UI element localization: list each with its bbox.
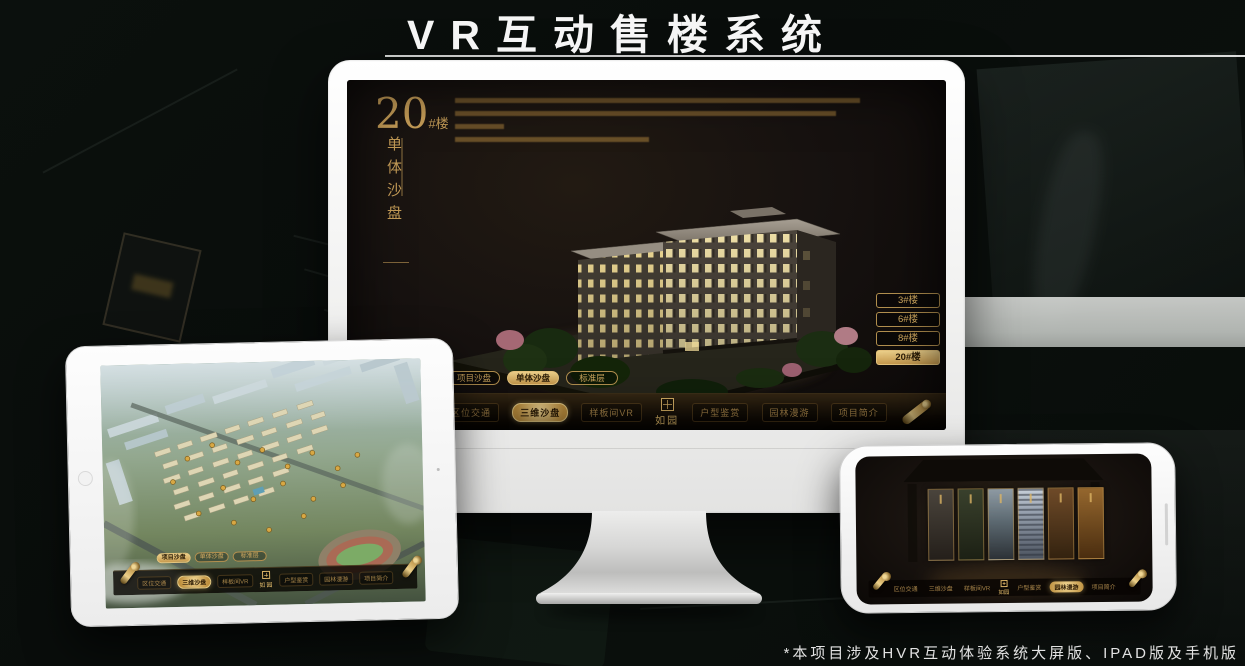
text-line	[455, 111, 836, 116]
tablet-nav-garden-tour[interactable]: 园林漫游	[319, 571, 353, 585]
tablet-device: 项目沙盘 单体沙盘 标准层 区位交通 三维沙盘 样板间VR 如园 户型鉴赏 园林…	[65, 338, 459, 628]
seal-icon	[661, 398, 674, 411]
scene-panel-interior[interactable]	[928, 489, 955, 561]
description-paragraph-blur	[455, 98, 860, 150]
building-selector-group: 3#楼 6#楼 8#楼 20#楼	[876, 293, 940, 365]
building-button-20[interactable]: 20#楼	[876, 350, 940, 365]
text-line	[455, 137, 649, 142]
tablet-nav-3d-sandbox[interactable]: 三维沙盘	[177, 575, 211, 589]
building-button-3[interactable]: 3#楼	[876, 293, 940, 308]
scene-panel-autumn[interactable]	[1048, 487, 1075, 559]
nav-item-3d-sandbox[interactable]: 三维沙盘	[512, 403, 568, 422]
tab-project-sandbox[interactable]: 项目沙盘	[448, 371, 500, 385]
bg-collage-topright	[977, 51, 1245, 319]
brand-logo-text: 如园	[655, 412, 679, 427]
phone-nav-garden-tour[interactable]: 园林漫游	[1049, 581, 1083, 592]
phone-right-scroll[interactable]	[1127, 576, 1139, 596]
tab-standard-floor[interactable]: 标准层	[566, 371, 618, 385]
tablet-screen: 项目沙盘 单体沙盘 标准层 区位交通 三维沙盘 样板间VR 如园 户型鉴赏 园林…	[100, 358, 425, 608]
phone-screen: 区位交通 三维沙盘 样板间VR 如园 户型鉴赏 园林漫游 项目简介	[855, 453, 1153, 604]
heading-underline	[383, 262, 409, 263]
scene-panel-courtyard[interactable]	[958, 488, 985, 560]
scene-panel-lit-interior[interactable]	[1078, 487, 1105, 559]
view-tab-group: 项目沙盘 单体沙盘 标准层	[448, 371, 618, 385]
building-number: 20	[375, 89, 428, 138]
tablet-left-scroll[interactable]	[117, 570, 132, 596]
bg-plaque-goldmark	[131, 274, 174, 299]
scroll-handle-icon	[1128, 569, 1145, 588]
footnote-caption: *本项目涉及HVR互动体验系统大屏版、IPAD版及手机版	[784, 642, 1239, 663]
phone-left-scroll[interactable]	[871, 578, 883, 598]
building-button-8[interactable]: 8#楼	[876, 331, 940, 346]
monitor-stand	[528, 511, 768, 615]
nav-item-showroom-vr[interactable]: 样板间VR	[581, 403, 642, 422]
brand-logo: 如园	[259, 571, 273, 589]
tablet-nav-showroom-vr[interactable]: 样板间VR	[217, 574, 254, 588]
building-number-unit: #楼	[428, 116, 448, 131]
phone-nav-project-intro[interactable]: 项目简介	[1089, 582, 1119, 591]
text-line	[455, 98, 860, 103]
scroll-handle-icon[interactable]	[901, 399, 932, 426]
pavilion-roof-silhouette	[903, 458, 1103, 482]
seal-icon	[262, 571, 270, 579]
seal-icon	[1000, 580, 1007, 587]
nav-item-project-intro[interactable]: 项目简介	[831, 403, 887, 422]
text-line	[455, 124, 504, 129]
brand-logo-text: 如园	[998, 587, 1009, 595]
nav-item-garden-tour[interactable]: 园林漫游	[762, 403, 818, 422]
phone-nav-unit-plans[interactable]: 户型鉴赏	[1014, 583, 1044, 592]
phone-nav-3d-sandbox[interactable]: 三维沙盘	[926, 584, 956, 593]
tablet-nav-location-transport[interactable]: 区位交通	[137, 576, 171, 590]
brand-logo: 如园	[655, 398, 679, 427]
tablet-camera-dot	[437, 468, 440, 471]
brand-logo: 如园	[998, 579, 1009, 595]
composite-canvas: VR互动售楼系统 20#楼 单体沙盘	[0, 0, 1245, 666]
nav-item-unit-plans[interactable]: 户型鉴赏	[692, 403, 748, 422]
scene-gallery	[928, 487, 1105, 561]
tablet-tab-standard-floor[interactable]: 标准层	[233, 551, 267, 562]
page-title: VR互动售楼系统	[407, 1, 838, 61]
phone-bottom-nav: 区位交通 三维沙盘 样板间VR 如园 户型鉴赏 园林漫游 项目简介	[869, 578, 1141, 598]
phone-nav-location-transport[interactable]: 区位交通	[891, 584, 921, 593]
pavilion-column	[908, 484, 918, 562]
heading-english-caption-blur	[401, 138, 403, 196]
tablet-home-button[interactable]	[78, 471, 93, 486]
tablet-tab-single-sandbox[interactable]: 单体沙盘	[195, 552, 229, 563]
tab-single-sandbox[interactable]: 单体沙盘	[507, 371, 559, 385]
phone-device: 区位交通 三维沙盘 样板间VR 如园 户型鉴赏 园林漫游 项目简介	[839, 442, 1177, 614]
brand-logo-text: 如园	[259, 580, 273, 589]
tablet-nav-project-intro[interactable]: 项目简介	[359, 571, 393, 585]
scene-panel-exterior[interactable]	[988, 488, 1015, 560]
tablet-tab-project-sandbox[interactable]: 项目沙盘	[157, 553, 191, 564]
bg-map-line	[43, 68, 238, 173]
scene-panel-tower[interactable]	[1018, 488, 1045, 560]
phone-side-button[interactable]	[1165, 503, 1168, 545]
bg-light-strip	[963, 297, 1245, 347]
bg-certificate-plaque	[102, 232, 201, 343]
building-button-6[interactable]: 6#楼	[876, 312, 940, 327]
tablet-nav-unit-plans[interactable]: 户型鉴赏	[279, 572, 313, 586]
phone-nav-showroom-vr[interactable]: 样板间VR	[961, 583, 993, 592]
tablet-right-scroll[interactable]	[399, 564, 414, 590]
